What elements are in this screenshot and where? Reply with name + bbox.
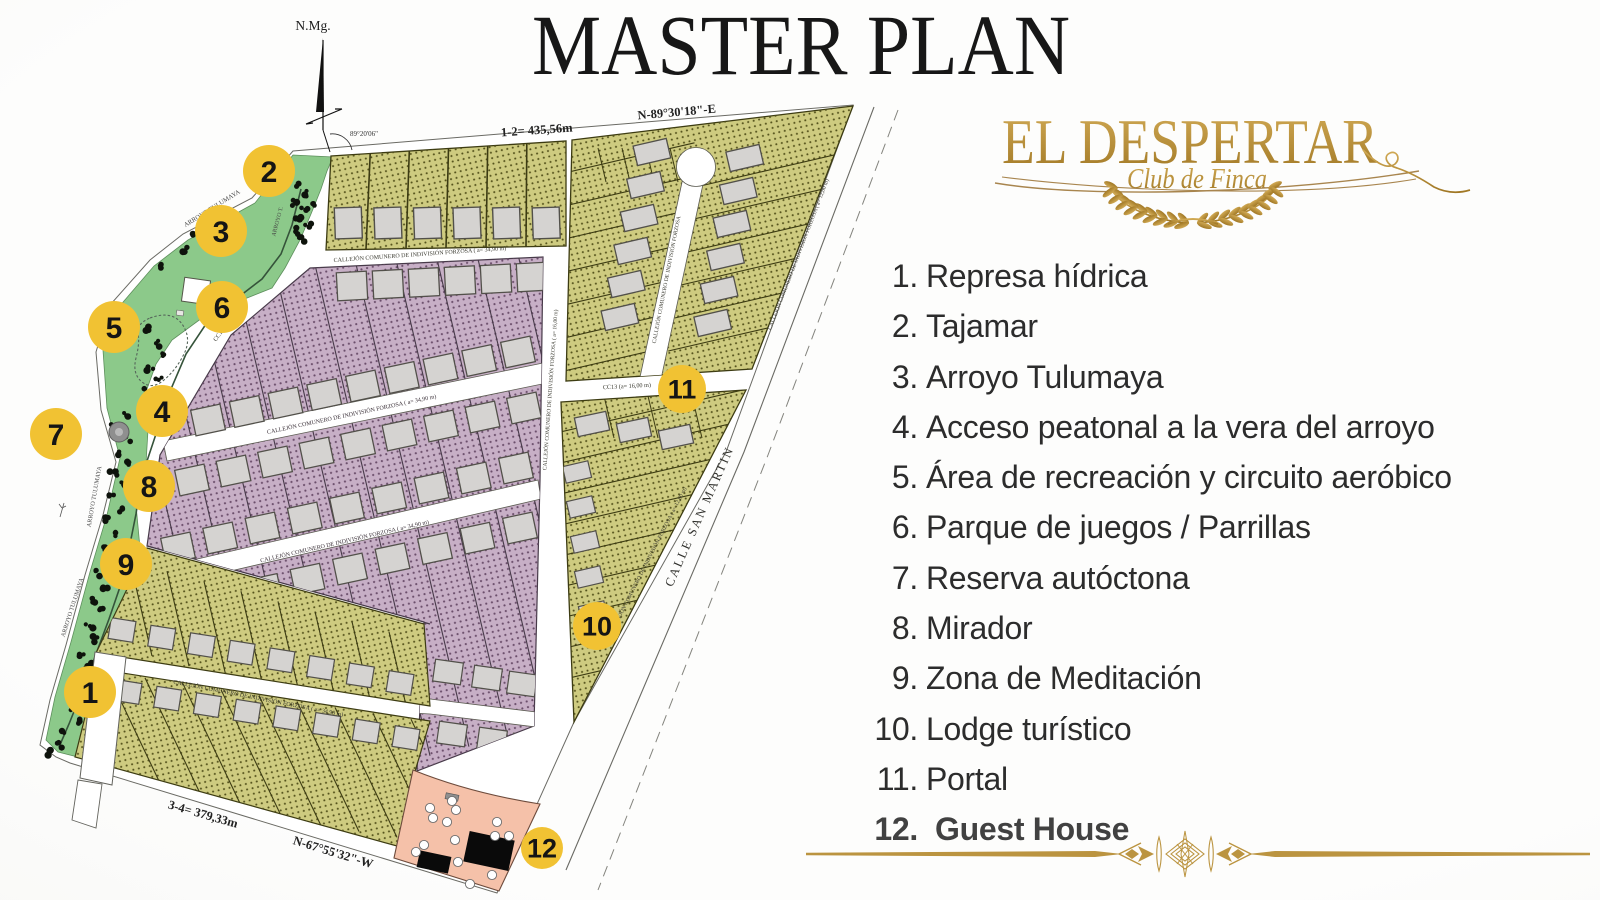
svg-text:9: 9	[118, 549, 135, 582]
svg-text:MASTER PLAN: MASTER PLAN	[532, 0, 1070, 93]
svg-text:8: 8	[141, 471, 158, 504]
svg-text:2: 2	[261, 156, 278, 189]
svg-text:12: 12	[527, 834, 557, 864]
svg-text:3: 3	[213, 216, 230, 249]
svg-text:N.Mg.: N.Mg.	[295, 18, 330, 33]
svg-text:10: 10	[582, 612, 612, 642]
svg-text:11: 11	[668, 375, 697, 405]
svg-text:7: 7	[48, 419, 65, 452]
svg-text:1: 1	[82, 677, 99, 710]
svg-text:4: 4	[154, 396, 171, 429]
svg-text:5: 5	[106, 312, 123, 345]
svg-text:89°20'06": 89°20'06"	[350, 130, 378, 138]
svg-text:ARROYO TULUMAYA: ARROYO TULUMAYA	[86, 465, 104, 528]
svg-text:6: 6	[214, 292, 231, 325]
